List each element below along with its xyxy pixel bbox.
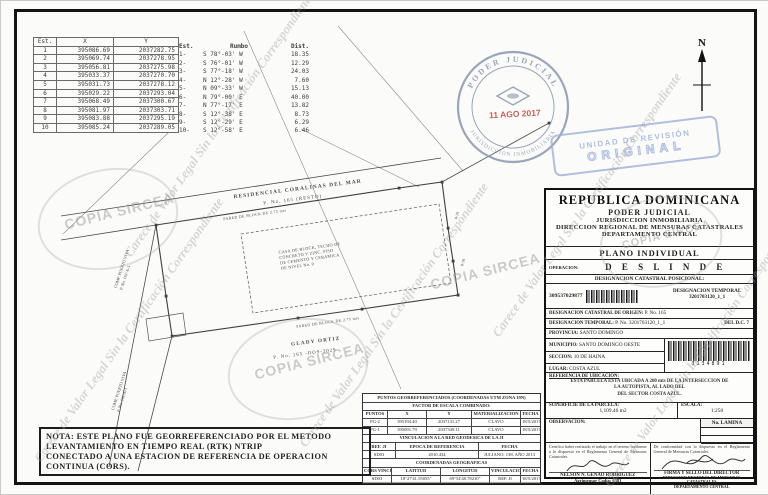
vinculacion-header-row: REF. JI EPOCA DE REFERENCIA FECHA <box>363 442 540 450</box>
stamp-top-text: PODER JUDICIAL <box>466 55 561 90</box>
origen-row: DESIGNACION CATASTRAL DE ORIGEN: P. No. … <box>546 308 753 318</box>
est-cell: 2 <box>34 55 57 64</box>
coordinate-row: 6 395029.22 2037293.04 <box>34 89 179 98</box>
location-rows: MUNICIPIO: SANTO DOMINGO OESTE SECCION: … <box>546 338 753 372</box>
bearing-row: 3- S 77°-18' W 24.03 <box>179 68 309 76</box>
factor-escala: FACTOR DE ESCALA COMBINADO: <box>363 403 540 410</box>
owner-parcel-label: P. No. 165 -DOS-3029 <box>273 348 337 361</box>
est-cell: 10 <box>34 123 57 132</box>
direccion-regional: DIRECCION REGIONAL DE MENSURAS CATASTRAL… <box>546 224 753 231</box>
lamina-cell-1 <box>701 428 753 436</box>
est-cell: 7 <box>34 98 57 107</box>
superficie-value: 1,109.46 m2 <box>549 408 677 414</box>
municipio-row: MUNICIPIO: SANTO DOMINGO OESTE <box>546 339 664 351</box>
y-cell: 2037300.67 <box>114 98 179 107</box>
stamp-date: 11 AGO 2017 <box>489 108 541 121</box>
escala-value: 1:250 <box>681 408 753 414</box>
bearing-row: 2- S 76°-01' W 12.29 <box>179 60 309 68</box>
coordinate-row: 10 395085.24 2037289.05 <box>34 123 179 132</box>
posicional-number: 309537029877 <box>549 293 583 299</box>
owner-label: GLADY ORTIZ <box>291 336 341 348</box>
col-y: Y <box>114 38 179 47</box>
svg-text:PODER JUDICIAL: PODER JUDICIAL <box>466 55 561 90</box>
building-description: CASA DE BLOCK, TECHO DE CONCRETO Y ZINC,… <box>278 241 343 271</box>
designacion-posicional-row: 309537029877 DESIGNACION TEMPORAL 320170… <box>546 283 753 308</box>
est-cell: 3 <box>34 63 57 72</box>
poder-judicial: PODER JUDICIAL <box>546 208 753 217</box>
pared-bottom-label: PARED DE BLOCK DE 2.75 mts <box>296 316 360 329</box>
georef-point-row: PG-2 395194.40 2037131.27 CLAVO 18/5/201… <box>363 418 540 426</box>
surveyor-certification: Certifico haber realizado el trabajo en … <box>546 443 650 494</box>
y-cell: 2037278.95 <box>114 55 179 64</box>
neighbor1-label: COMP. PUERTO VIVA P. No. 161-A-3 <box>113 249 136 291</box>
est-cell: 8 <box>34 106 57 115</box>
x-cell: 395056.81 <box>57 63 114 72</box>
north-arrow-icon <box>689 49 715 117</box>
designacion-posicional-label: DESIGNACION CATASTRAL POSICIONAL: <box>546 274 753 283</box>
del-dc: DEL D.C. 7 <box>724 319 749 328</box>
barcode-large <box>668 341 750 361</box>
coordinate-row: 9 395083.88 2037295.19 <box>34 115 179 124</box>
scanned-cadastral-plan: RESIDENCIAL CORALINAS DEL MAR P. No. 165… <box>0 0 768 495</box>
col-est: Est. <box>34 38 57 47</box>
bearings-header: Est. Rumbo Dist. <box>179 43 309 51</box>
coordinate-row: 5 395031.73 2037278.12 <box>34 80 179 89</box>
bearing-row: 5- N 09°-33' W 15.13 <box>179 85 309 93</box>
bearing-row: 6- N 79°-00' E 40.00 <box>179 94 309 102</box>
nota-box: NOTA: ESTE PLANO FUE GEORREFERENCIADO PO… <box>39 427 371 476</box>
x-cell: 395085.24 <box>57 123 114 132</box>
georeference-table: PUNTOS GEORREFERENCIADOS (COORDENADAS UT… <box>362 393 541 484</box>
title-block-panel: REPUBLICA DOMINICANA PODER JUDICIAL JURI… <box>544 188 755 479</box>
coordinates-table: Est. X Y 1 395086.69 2037282.75 2 395069… <box>33 37 179 133</box>
y-cell: 2037295.19 <box>114 115 179 124</box>
x-cell: 395068.49 <box>57 98 114 107</box>
est-cell: 6 <box>34 89 57 98</box>
designacion-temporal-value: 3201703120_1_1 <box>661 294 753 300</box>
x-cell: 395033.37 <box>57 72 114 81</box>
vertex-tag-1: 8-18 <box>459 258 466 266</box>
y-cell: 2037303.71 <box>114 106 179 115</box>
surveyor-code: Agrimensor Codia: 6383 <box>549 478 647 483</box>
director-certification: De conformidad con lo dispuesto en el Re… <box>650 443 754 494</box>
barcode-small <box>586 290 638 303</box>
x-cell: 395086.69 <box>57 46 114 55</box>
country-title: REPUBLICA DOMINICANA <box>546 193 753 208</box>
y-cell: 2037270.70 <box>114 72 179 81</box>
x-cell: 395083.88 <box>57 115 114 124</box>
est-cell: 5 <box>34 80 57 89</box>
coordinate-row: 7 395068.49 2037300.67 <box>34 98 179 107</box>
coordinate-row: 8 395081.97 2037303.71 <box>34 106 179 115</box>
barcode-number: 3134891 <box>665 361 753 367</box>
geograficas-header-row: CORS VINCULADA LATITUD LONGITUD VINCULAC… <box>363 467 540 475</box>
bearings-table: Est. Rumbo Dist. 1- S 78°-03' W 18.35 2-… <box>179 43 309 136</box>
bearing-row: 8- S 12°-38' E 8.73 <box>179 111 309 119</box>
geograficas-value-row: SD03 18°27'41.55055" 69°54'48.78210" REF… <box>363 475 540 483</box>
vinculacion-value-row: SD03 2010.434 JULIANO, 138, AÑO 2013 <box>363 450 540 458</box>
y-cell: 2037275.98 <box>114 63 179 72</box>
x-cell: 395031.73 <box>57 80 114 89</box>
observacion-label: OBSERVACION: <box>546 419 700 442</box>
certification-boxes: Certifico haber realizado el trabajo en … <box>546 442 753 494</box>
temporal-row: DESIGNACION TEMPORAL: P. No. 3201703120_… <box>546 318 753 328</box>
est-cell: 4 <box>34 72 57 81</box>
georef-point-row: PG-1 395091.79 2037349.11 CLAVO 18/5/201… <box>363 426 540 434</box>
bearing-row: 10- S 12°-58' E 6.46 <box>179 127 309 135</box>
coordinate-row: 4 395033.37 2037270.70 <box>34 72 179 81</box>
plano-individual-row: PLANO INDIVIDUAL <box>546 246 753 259</box>
x-cell: 395029.22 <box>57 89 114 98</box>
panel-header: REPUBLICA DOMINICANA PODER JUDICIAL JURI… <box>546 190 753 246</box>
bearing-row: 9- S 12°-29' E 6.29 <box>179 119 309 127</box>
y-cell: 2037278.12 <box>114 80 179 89</box>
jurisdiccion: JURISDICCION INMOBILIARIA <box>546 217 753 224</box>
x-cell: 395081.97 <box>57 106 114 115</box>
y-cell: 2037282.75 <box>114 46 179 55</box>
superficie-escala-row: SUPERFICIE DE LA PARCELA: 1,109.46 m2 ES… <box>546 402 753 418</box>
annex-outline <box>146 313 186 341</box>
operacion-row: OPERACION: D E S L I N D E <box>546 259 753 274</box>
provincia-row: PROVINCIA: SANTO DOMINGO <box>546 328 753 338</box>
vertex-tag-2: 8-19 <box>453 211 460 219</box>
referencia-row: REFERENCIA DE UBICACION: ESTA PARCELA ES… <box>546 372 753 402</box>
building-outline <box>241 204 451 313</box>
coordenadas-geograficas-title: COORDENADAS GEOGRAFICAS <box>363 459 540 467</box>
coordinate-row: 3 395056.81 2037275.98 <box>34 63 179 72</box>
georef-header-row: PUNTOS X Y MATERIALIZACION FECHA <box>363 410 540 418</box>
x-cell: 395069.74 <box>57 55 114 64</box>
table-header-row: Est. X Y <box>34 38 179 47</box>
y-cell: 2037289.05 <box>114 123 179 132</box>
bearing-row: 4- N 12°-28' W 7.60 <box>179 77 309 85</box>
coordinate-row: 2 395069.74 2037278.95 <box>34 55 179 64</box>
vinculacion-title: VINCULACION A LA RED GEODESICA DE LA JI <box>363 435 540 443</box>
neighbor2-label: COMP. PUERTO VIVA P. No. 161-A-1 <box>110 371 133 413</box>
y-cell: 2037293.04 <box>114 89 179 98</box>
lamina-label: No. LAMINA <box>701 419 753 428</box>
north-arrow: N <box>689 37 715 121</box>
operacion-value: D E S L I N D E <box>579 262 753 272</box>
north-label: N <box>689 37 715 49</box>
operacion-label: OPERACION: <box>549 265 579 270</box>
observacion-row: OBSERVACION: No. LAMINA <box>546 418 753 442</box>
est-cell: 9 <box>34 115 57 124</box>
coordinate-row: 1 395086.69 2037282.75 <box>34 46 179 55</box>
seccion-row: SECCION: 10 DE HAINA <box>546 351 664 363</box>
col-x: X <box>57 38 114 47</box>
bearing-row: 7- N 77°-17' E 13.82 <box>179 102 309 110</box>
bearing-row: 1- S 78°-03' W 18.35 <box>179 51 309 59</box>
departamento: DEPARTAMENTO CENTRAL <box>546 231 753 238</box>
est-cell: 1 <box>34 46 57 55</box>
georef-title: PUNTOS GEORREFERENCIADOS (COORDENADAS UT… <box>363 394 540 402</box>
